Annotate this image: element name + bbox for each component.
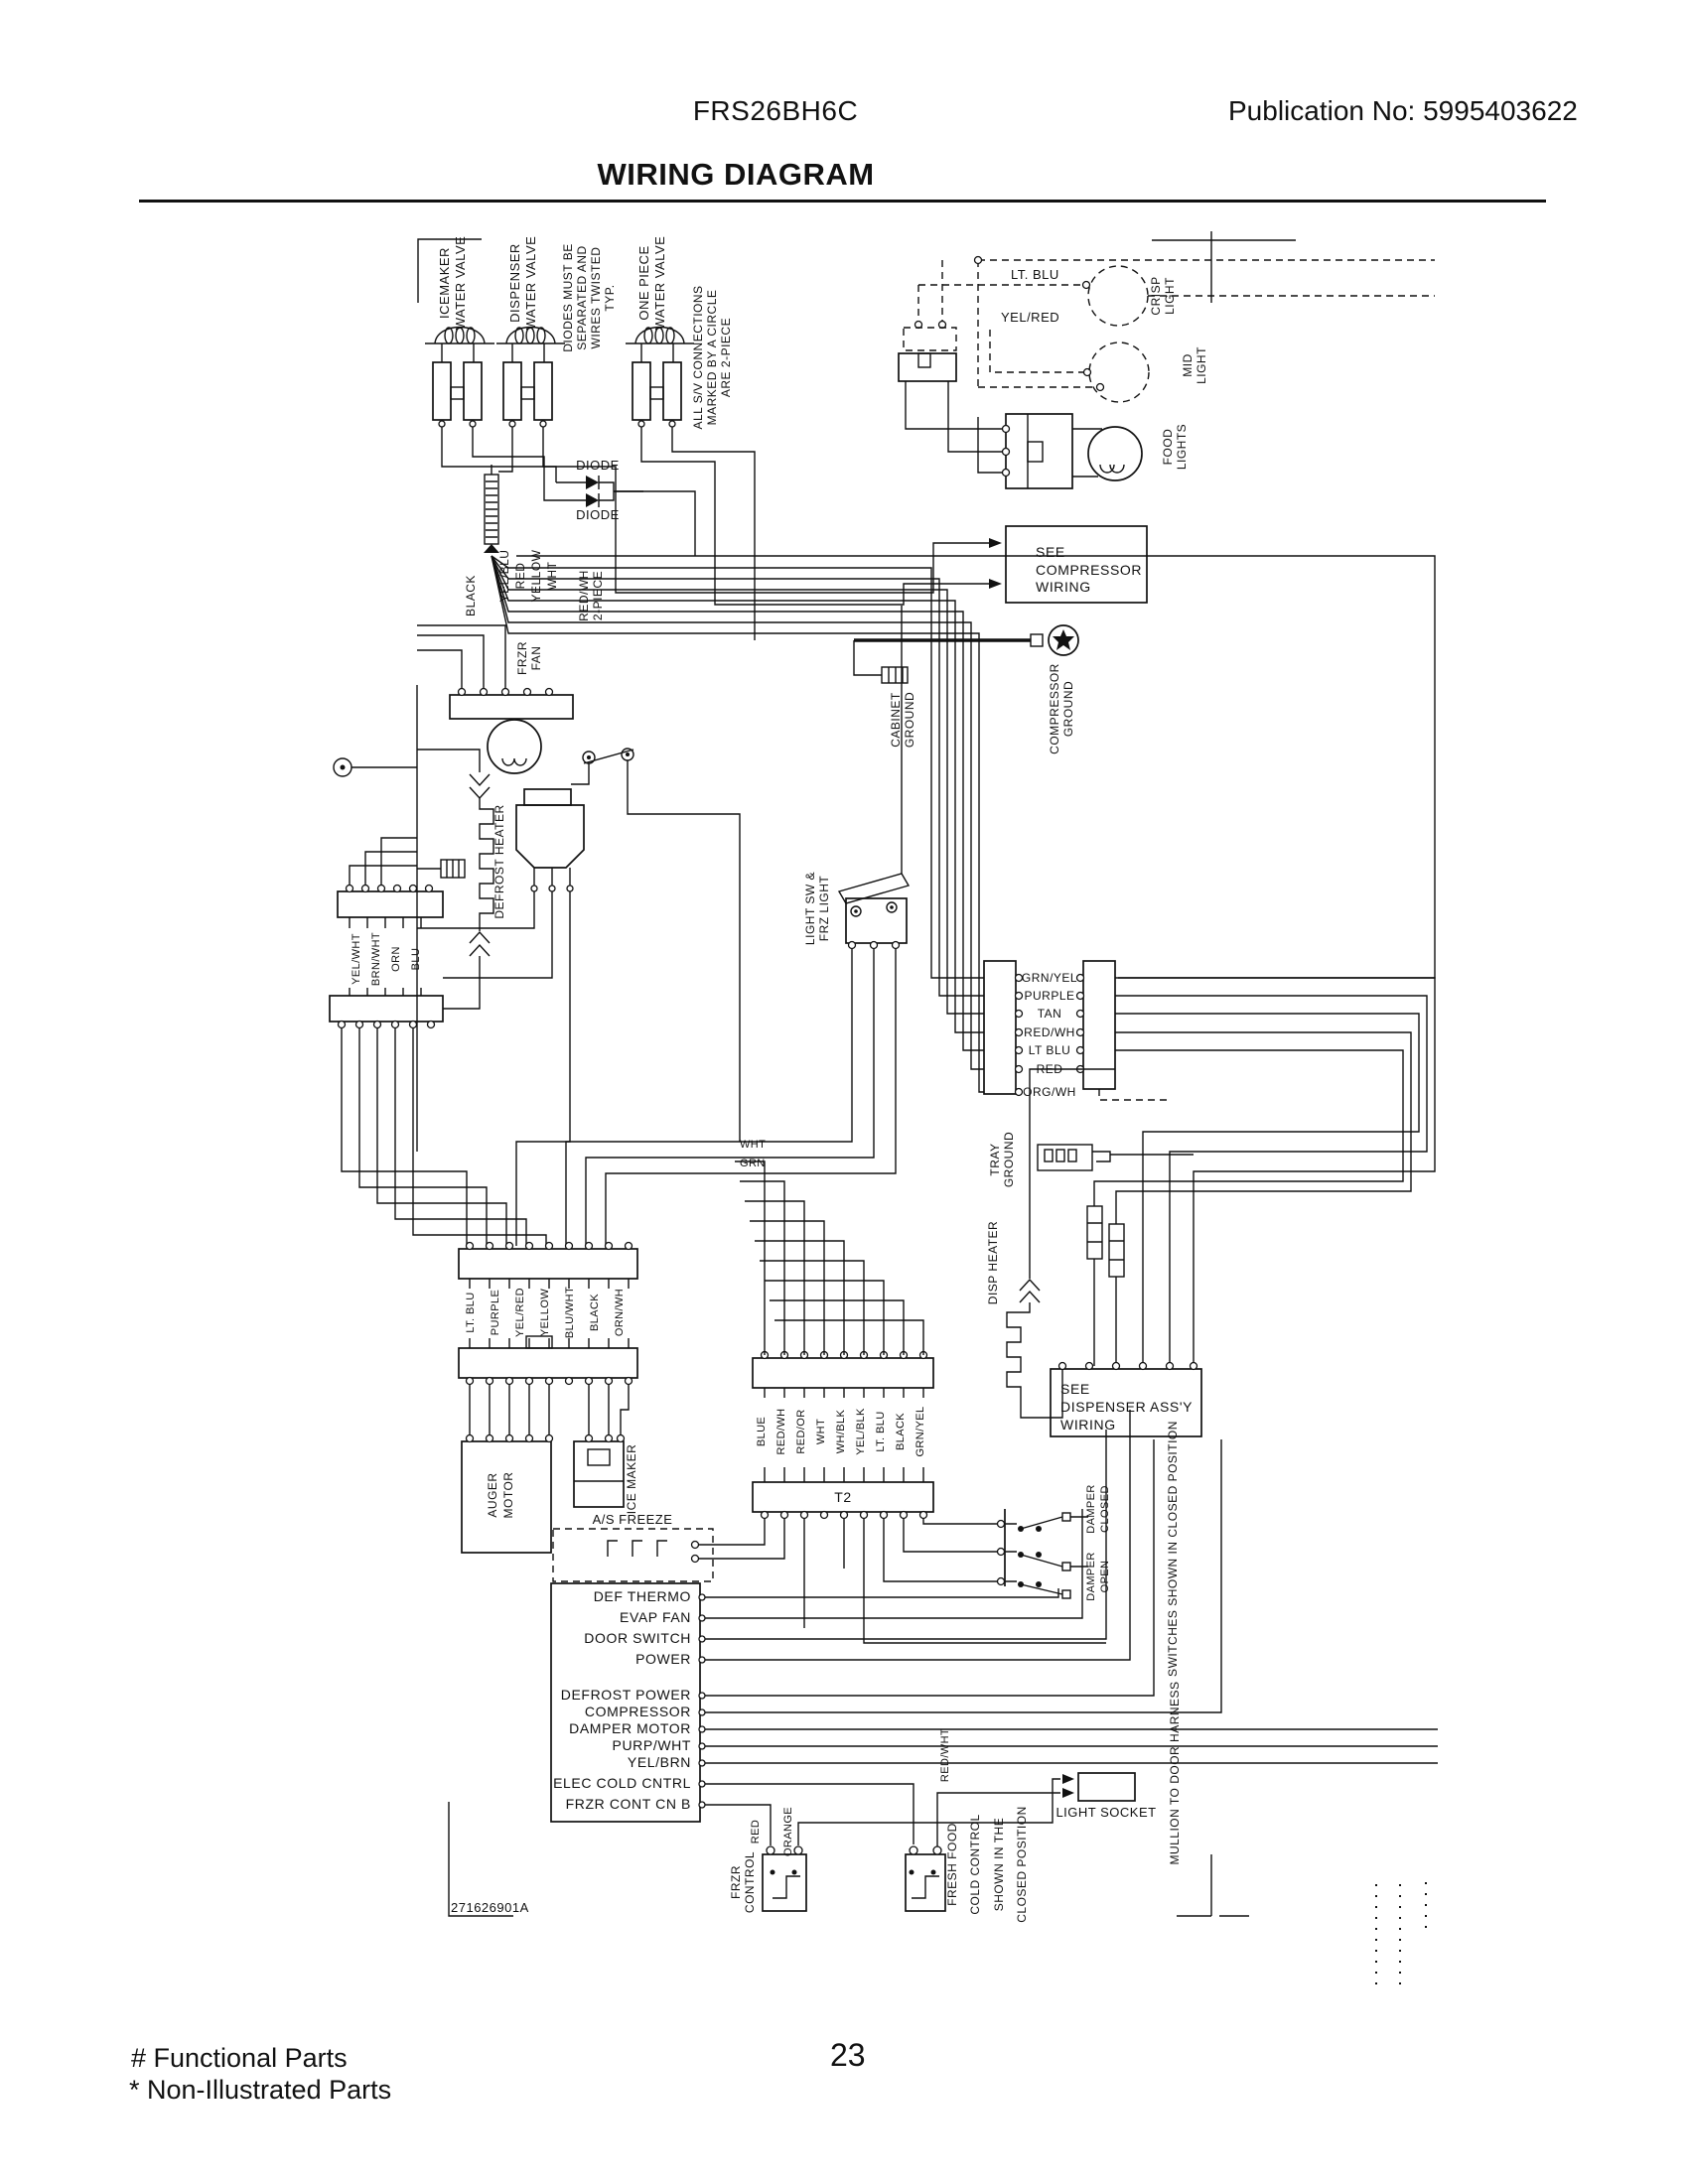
board-pin-label: POWER [635,1651,691,1667]
connection-note: ALL S/V CONNECTIONS [691,285,705,429]
mullion-note: MULLION TO DOOR HARNESS [1168,1681,1182,1864]
wire-color-label: YEL/RED [1001,310,1059,325]
damper-switches [998,1509,1089,1598]
wire-color-label: RED [513,563,527,590]
see-compressor-text: WIRING [1036,579,1091,595]
see-dispenser-text: DISPENSER ASS'Y [1060,1399,1193,1415]
compressor-ground-label: GROUND [1061,681,1075,737]
footnote-non-illustrated: * Non-Illustrated Parts [129,2075,391,2106]
wire-bundle [484,475,499,553]
ground-lug [854,625,1078,655]
wire-color-label: BLACK [895,1413,907,1450]
valve1-label: ICEMAKER [437,247,452,319]
board-pin-label: ELEC COLD CNTRL [553,1775,691,1791]
compressor-ground-label: COMPRESSOR [1048,663,1061,754]
board-pin-label: DEFROST POWER [561,1687,691,1703]
see-dispenser-text: SEE [1060,1381,1090,1397]
refrig-light-switch [566,874,909,1246]
connector-strips-left [330,838,546,1246]
evap-ground-clip [417,860,465,878]
diode-label: DIODE [576,507,620,522]
console-connector-pair [984,961,1435,1366]
cold-control-note: COLD CONTROL [968,1814,982,1914]
wire-color-label: LT. BLU [875,1411,887,1451]
valve2-label: DISPENSER [507,243,522,323]
see-dispenser-text: WIRING [1060,1417,1116,1433]
wire-color-label: WHT [545,561,559,590]
board-pin-label: FRZR CONT CN B [566,1796,691,1812]
wire-color-label: GRN/YEL [1022,971,1077,985]
wire-color-label: ORANGE [782,1807,794,1856]
wiring-diagram: 271626901A ICEMAKER WATE [0,0,1688,2184]
board-pin-label: YEL/BRN [628,1754,691,1770]
wire-color-label: BLACK [589,1294,601,1331]
damper-note: SWITCHES SHOWN IN CLOSED POSITION [1166,1421,1180,1677]
wire-color-label: ORN/WH [614,1289,626,1336]
connection-note: ARE 2-PIECE [719,318,733,397]
wire-color-label: RED/WHT [939,1728,951,1782]
wire-color-label: BLU/WHT [564,1287,576,1338]
wire-color-label: GRN/YEL [914,1406,926,1456]
tray-ground-label: GROUND [1002,1132,1016,1187]
frzr-control-label: FRZR [729,1865,743,1899]
cabinet-ground-label: CABINET [889,692,903,748]
diagram-part-number: 271626901A [451,1900,529,1915]
ice-maker-label: ICE MAKER [625,1444,638,1515]
wire-color-label: YEL/RED [514,1288,526,1337]
wire-color-label: BLACK [464,575,478,616]
dispenser-heater-label: DISP HEATER [986,1221,1000,1304]
damper-closed-label: DAMPER [1085,1484,1097,1533]
frzr-fan-label: FRZR [515,641,529,675]
cabinet-ground [854,640,908,683]
defrost-heater-label: DEFROST HEATER [492,804,506,918]
wire-color-label: ORG/WH [1023,1085,1076,1099]
wire-color-label: WHT [815,1419,827,1444]
board-pin-label: EVAP FAN [620,1609,691,1625]
wire-color-label: BRN/WHT [370,932,382,986]
diode-note: TYP. [603,284,617,311]
footnote-functional: # Functional Parts [131,2043,348,2074]
frzr-control-label: CONTROL [743,1851,757,1913]
diode-label: DIODE [576,458,620,473]
diode-note: SEPARATED AND [575,245,589,349]
food-lights-label: LIGHTS [1175,424,1189,470]
board-pin-label: DOOR SWITCH [584,1630,691,1646]
frzr-fan-label: FAN [529,646,543,671]
wire-color-label: RED/WH [775,1408,787,1454]
wire-color-label: LT. BLU [1011,267,1059,282]
cabinet-ground-label: GROUND [903,692,916,748]
harness-connector-pair [459,1243,637,1439]
mid-light-label: LIGHT [1195,346,1208,384]
wire-color-label: YEL/WHT [351,933,362,985]
water-valve-2 [496,328,565,428]
board-pin-label: COMPRESSOR [585,1704,691,1719]
ice-maker-box [574,1435,625,1508]
light-switch-label: FRZ LIGHT [817,876,831,942]
auger-motor-label: AUGER [486,1472,499,1517]
damper-open-label: OPEN [1099,1561,1111,1593]
tray-ground-label: TRAY [988,1143,1002,1175]
manual-page: FRS26BH6C Publication No: 5995403622 WIR… [0,0,1688,2184]
wire-color-label: WHT [740,1139,766,1151]
valve1-label: WATER VALVE [453,236,468,331]
valve3-label: WATER VALVE [652,236,667,331]
wire-color-label: BLUE [756,1417,768,1446]
inline-fuses [1087,1206,1124,1366]
damper-open-label: DAMPER [1085,1552,1097,1600]
two-piece-label: 2-PIECE [591,571,605,620]
food-lights-label: FOOD [1161,429,1175,466]
fresh-food-control [906,1793,1060,1911]
page-number: 23 [830,2037,866,2074]
wire-color-label: RED/WH [1024,1025,1075,1039]
wire-color-label: RED [750,1820,762,1843]
wire-bus [442,427,1435,1092]
board-pin-label: DAMPER MOTOR [569,1720,691,1736]
water-valve-1 [425,328,494,428]
wire-color-label: PURPLE [1024,989,1074,1003]
light-socket-label: LIGHT SOCKET [1055,1805,1156,1820]
crisp-light-label: LIGHT [1163,277,1177,315]
t2-connector [699,1161,1106,1643]
freezer-fan [417,625,573,773]
cold-control-note: FRESH FOOD [945,1823,959,1906]
board-pin-label: DEF THERMO [594,1588,691,1604]
wire-color-label: YEL/BLU [497,550,511,603]
diode-note: WIRES TWISTED [589,247,603,349]
see-compressor-text: SEE [1036,544,1065,560]
wire-color-label: TAN [1038,1007,1062,1021]
freezer-light-switch [571,749,740,1142]
damper-closed-label: CLOSED [1099,1485,1111,1533]
light-switch-label: LIGHT SW & [803,872,817,945]
two-piece-label: RED/WH [577,570,591,621]
cold-control-note: CLOSED POSITION [1015,1806,1029,1923]
wire-color-label: BLU [410,948,422,971]
wire-color-label: LT BLU [1029,1043,1071,1057]
wire-color-label: YELLOW [539,1289,551,1336]
wire-color-label: GRN [740,1158,766,1169]
valve3-label: ONE PIECE [636,245,651,320]
connection-note: MARKED BY A CIRCLE [705,290,719,426]
wire-color-label: YEL/BLK [855,1408,867,1455]
as-freeze-label: A/S FREEZE [593,1512,673,1527]
t2-label: T2 [834,1489,852,1505]
wire-color-label: PURPLE [490,1290,501,1335]
wire-color-label: RED/OR [795,1409,807,1453]
wire-color-label: WH/BLK [835,1409,847,1453]
mid-light-label: MID [1181,353,1195,377]
wire-color-label: YELLOW [529,549,543,602]
crisp-light-label: CRISP [1149,276,1163,315]
food-light-block [906,392,1142,488]
auger-motor-label: MOTOR [501,1472,515,1519]
diode-note: DIODES MUST BE [561,243,575,351]
board-pin-label: PURP/WHT [613,1737,691,1753]
wire-color-label: ORN [390,946,402,972]
water-valve-3 [626,328,694,428]
wire-color-label: LT. BLU [465,1292,477,1332]
as-freeze-box [553,1529,713,1581]
see-compressor-text: COMPRESSOR [1036,562,1142,578]
valve2-label: WATER VALVE [523,236,538,331]
cold-control-note: SHOWN IN THE [992,1818,1006,1911]
light-socket [1062,1773,1135,1801]
